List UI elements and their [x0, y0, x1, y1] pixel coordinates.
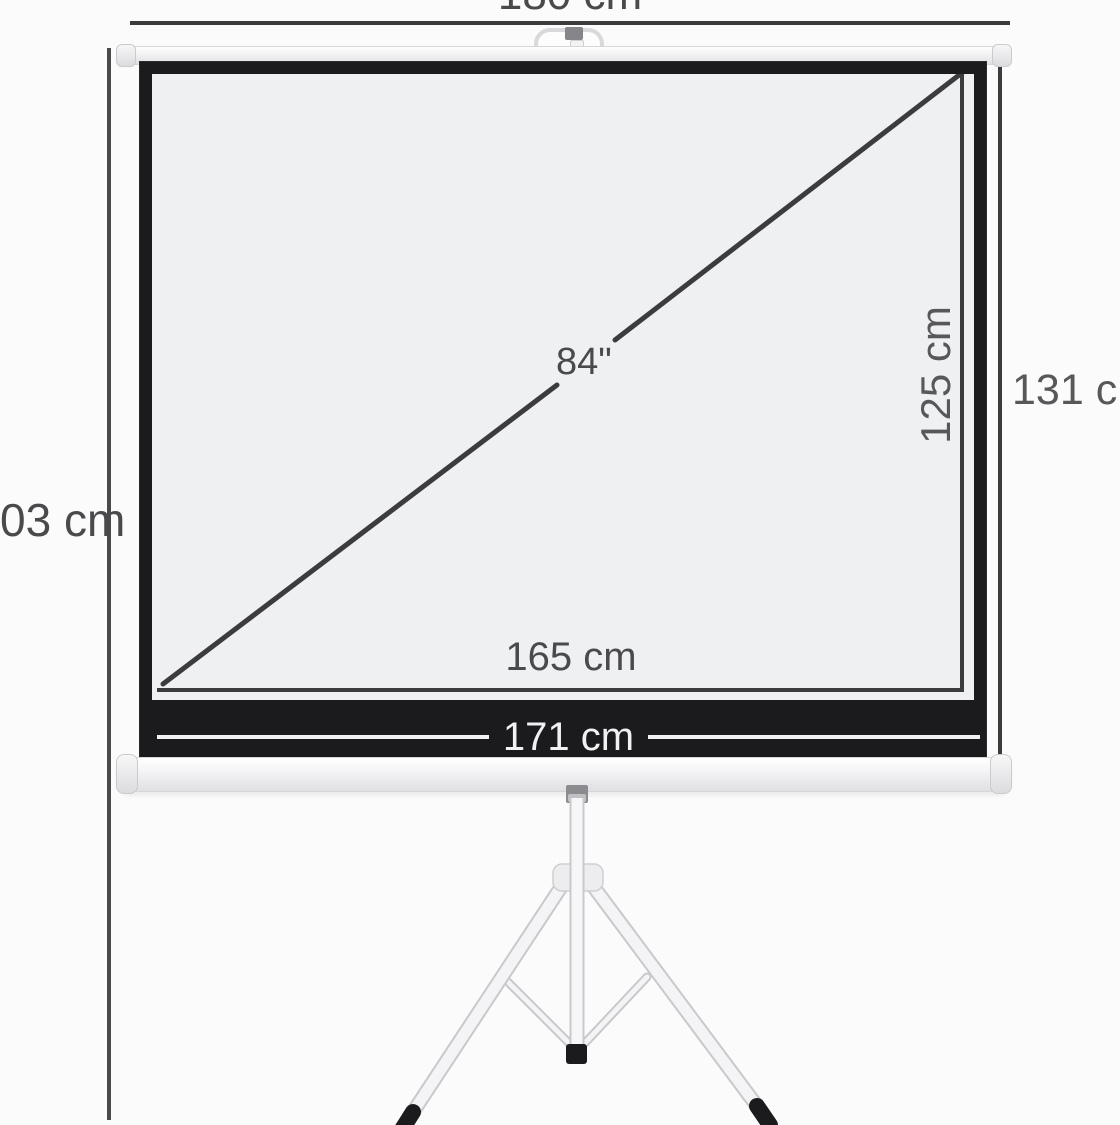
tripod-leg-left [413, 878, 567, 1112]
dimension-label-overall-width: 180 cm [420, 0, 720, 17]
tripod-foot-left [401, 1112, 413, 1125]
top-roller-cap-left [116, 44, 136, 67]
dimension-line-case-width: 171 cm [157, 718, 980, 756]
dimension-label-diagonal: 84" [556, 342, 612, 382]
tripod-foot-center [566, 1044, 587, 1064]
surface-measurement-lines [152, 74, 974, 700]
hanging-loop-clamp [565, 27, 583, 40]
dimension-label-viewing-width: 165 cm [471, 636, 671, 678]
dimension-label-case-width: 171 cm [489, 715, 648, 760]
tripod-strut-left [506, 980, 569, 1043]
tripod-stand [350, 780, 820, 1125]
tripod-foot-right [757, 1106, 770, 1125]
case-width-line-left [157, 735, 489, 739]
tripod-strut-right [585, 977, 647, 1043]
tripod-leg-right [587, 878, 757, 1106]
dimension-line-overall-width [130, 21, 1010, 25]
dimension-line-stand-height [107, 48, 111, 1120]
product-dimension-diagram: { "diagram": { "type": "product-dimensio… [0, 0, 1120, 1120]
bottom-roller-cap-right [990, 754, 1012, 794]
diagonal-line-upper [615, 74, 963, 340]
bottom-roller-cap-left [116, 754, 138, 794]
screen-surface: 84" 165 cm 125 cm [152, 74, 974, 700]
dimension-label-screen-height: 131 cm [1012, 368, 1120, 413]
top-roller-cap-right [992, 44, 1012, 67]
dimension-label-viewing-height: 125 cm [912, 306, 960, 444]
case-width-line-right [648, 735, 980, 739]
dimension-line-screen-height [998, 58, 1002, 757]
